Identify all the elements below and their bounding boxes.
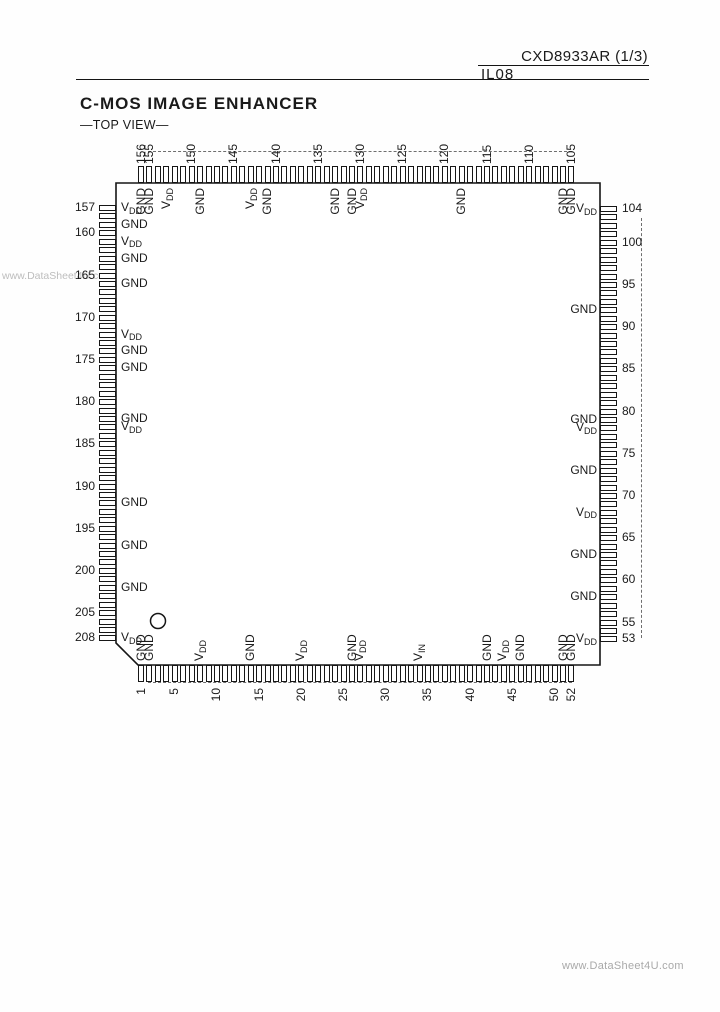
pin-124 — [408, 166, 414, 183]
pin-93 — [600, 299, 617, 305]
pin-162 — [99, 247, 116, 253]
pin-202 — [99, 585, 116, 591]
pin-114 — [492, 166, 498, 183]
pin-label-197: GND — [121, 539, 148, 552]
pin-16 — [265, 665, 271, 682]
pin-177 — [99, 374, 116, 380]
pin-165 — [99, 273, 116, 279]
pin-155 — [146, 166, 152, 183]
pin-180 — [99, 399, 116, 405]
pin-128 — [374, 166, 380, 183]
pin-number-55: 55 — [622, 616, 635, 629]
pin-59 — [600, 586, 617, 592]
pin-144 — [239, 166, 245, 183]
pin-45 — [509, 665, 515, 682]
pin-173 — [99, 340, 116, 346]
pin-100 — [600, 240, 617, 246]
pin-138 — [290, 166, 296, 183]
pin-87 — [600, 349, 617, 355]
pin-121 — [433, 166, 439, 183]
pin-42 — [484, 665, 490, 682]
pin-15 — [256, 665, 262, 682]
pin-label-192: GND — [121, 496, 148, 509]
pin-176 — [99, 365, 116, 371]
pin-153 — [163, 166, 169, 183]
pin-168 — [99, 298, 116, 304]
pin-number-205: 205 — [75, 606, 95, 619]
pin-54 — [600, 628, 617, 634]
pin-label-159: GND — [121, 218, 148, 231]
pin-81 — [600, 400, 617, 406]
pin-82 — [600, 392, 617, 398]
pin-40 — [467, 665, 473, 682]
pin-185 — [99, 441, 116, 447]
pin-188 — [99, 467, 116, 473]
pin-190 — [99, 484, 116, 490]
pin-203 — [99, 593, 116, 599]
pin-30 — [383, 665, 389, 682]
pin-48 — [535, 665, 541, 682]
pin-163 — [99, 256, 116, 262]
pin-number-157: 157 — [75, 201, 95, 214]
pin-51 — [560, 665, 566, 682]
pin-4 — [163, 665, 169, 682]
pin-104 — [600, 206, 617, 212]
pin-113 — [501, 166, 507, 183]
pin-193 — [99, 509, 116, 515]
pin-140 — [273, 166, 279, 183]
pin-88 — [600, 341, 617, 347]
pin-72 — [600, 476, 617, 482]
pin-46 — [518, 665, 524, 682]
pin-34 — [417, 665, 423, 682]
pin-195 — [99, 526, 116, 532]
pin-36 — [433, 665, 439, 682]
pin-161 — [99, 239, 116, 245]
pin-115 — [484, 166, 490, 183]
pin-109 — [535, 166, 541, 183]
pin-102 — [600, 223, 617, 229]
pin-number-60: 60 — [622, 573, 635, 586]
pin-19 — [290, 665, 296, 682]
pin-94 — [600, 290, 617, 296]
pin-131 — [349, 166, 355, 183]
pin-142 — [256, 166, 262, 183]
pin-67 — [600, 518, 617, 524]
pin-label-172: VDD — [121, 328, 142, 342]
pin-number-70: 70 — [622, 489, 635, 502]
pin-125 — [400, 166, 406, 183]
pin-18 — [281, 665, 287, 682]
pin-191 — [99, 492, 116, 498]
pin-label-163: GND — [121, 252, 148, 265]
pin-85 — [600, 366, 617, 372]
pin-95 — [600, 282, 617, 288]
pin-105 — [568, 166, 574, 183]
pin-107 — [552, 166, 558, 183]
pin-38 — [450, 665, 456, 682]
datasheet-page: CXD8933AR (1/3) IL08 C-MOS IMAGE ENHANCE… — [0, 0, 720, 1012]
pin-146 — [222, 166, 228, 183]
pin-78 — [600, 425, 617, 431]
pin-5 — [172, 665, 178, 682]
pin-135 — [315, 166, 321, 183]
pin-174 — [99, 348, 116, 354]
pin-number-200: 200 — [75, 564, 95, 577]
pin-label-166: GND — [121, 277, 148, 290]
pin-167 — [99, 289, 116, 295]
pin-52 — [568, 665, 574, 682]
pin-39 — [459, 665, 465, 682]
pin-label-53: VDD — [576, 632, 597, 646]
pin-41 — [476, 665, 482, 682]
pin-label-68: VDD — [576, 506, 597, 520]
pin-2 — [146, 665, 152, 682]
pin-179 — [99, 391, 116, 397]
pin-11 — [222, 665, 228, 682]
pin-56 — [600, 611, 617, 617]
pin-129 — [366, 166, 372, 183]
pin-106 — [560, 166, 566, 183]
pin-116 — [476, 166, 482, 183]
pin-label-104: VDD — [576, 202, 597, 216]
pin-3 — [155, 665, 161, 682]
pin-197 — [99, 543, 116, 549]
pin-97 — [600, 265, 617, 271]
pin-199 — [99, 559, 116, 565]
pin-89 — [600, 333, 617, 339]
pin-103 — [600, 214, 617, 220]
pin-55 — [600, 620, 617, 626]
pin-63 — [600, 552, 617, 558]
pin-76 — [600, 442, 617, 448]
pin-143 — [248, 166, 254, 183]
pin-10 — [214, 665, 220, 682]
pin-58 — [600, 594, 617, 600]
pin-160 — [99, 230, 116, 236]
pin-83 — [600, 383, 617, 389]
pin-23 — [324, 665, 330, 682]
pin-172 — [99, 332, 116, 338]
pin-number-190: 190 — [75, 480, 95, 493]
pin-74 — [600, 459, 617, 465]
pin-1 — [138, 665, 144, 682]
pin-208 — [99, 635, 116, 641]
pin-152 — [172, 166, 178, 183]
pin-186 — [99, 450, 116, 456]
pin-90 — [600, 324, 617, 330]
pin-61 — [600, 569, 617, 575]
pin-49 — [543, 665, 549, 682]
pin-64 — [600, 544, 617, 550]
pin-label-202: GND — [121, 581, 148, 594]
pin-label-161: VDD — [121, 235, 142, 249]
pin-75 — [600, 451, 617, 457]
pin-53 — [600, 636, 617, 642]
pin-166 — [99, 281, 116, 287]
pin-117 — [467, 166, 473, 183]
pin-label-73: GND — [570, 464, 597, 477]
pin-32 — [400, 665, 406, 682]
pin-number-195: 195 — [75, 522, 95, 535]
pin-number-180: 180 — [75, 395, 95, 408]
pin-label-176: GND — [121, 361, 148, 374]
pin-70 — [600, 493, 617, 499]
pin-37 — [442, 665, 448, 682]
pin-91 — [600, 316, 617, 322]
pin-108 — [543, 166, 549, 183]
pin-13 — [239, 665, 245, 682]
pin-label-63: GND — [570, 548, 597, 561]
pin-number-90: 90 — [622, 320, 635, 333]
pin-204 — [99, 602, 116, 608]
pin-20 — [298, 665, 304, 682]
pin-207 — [99, 627, 116, 633]
pin-number-100: 100 — [622, 236, 642, 249]
pin-118 — [459, 166, 465, 183]
pin-192 — [99, 500, 116, 506]
pin-183 — [99, 424, 116, 430]
pin-number-65: 65 — [622, 531, 635, 544]
pin-73 — [600, 468, 617, 474]
pin-99 — [600, 248, 617, 254]
pin-110 — [526, 166, 532, 183]
pin-33 — [408, 665, 414, 682]
pin-147 — [214, 166, 220, 183]
pin-198 — [99, 551, 116, 557]
pin-201 — [99, 576, 116, 582]
pin-71 — [600, 485, 617, 491]
pin-21 — [307, 665, 313, 682]
pin-92 — [600, 307, 617, 313]
pin-77 — [600, 434, 617, 440]
pin-148 — [206, 166, 212, 183]
pin-127 — [383, 166, 389, 183]
pin-12 — [231, 665, 237, 682]
pin-number-53: 53 — [622, 632, 635, 645]
pin-31 — [391, 665, 397, 682]
pin-label-78: VDD — [576, 421, 597, 435]
pin-132 — [341, 166, 347, 183]
pin-154 — [155, 166, 161, 183]
pin-151 — [180, 166, 186, 183]
pin-label-208: VDD — [121, 631, 142, 645]
pin-label-58: GND — [570, 590, 597, 603]
pin-9 — [206, 665, 212, 682]
pin-86 — [600, 358, 617, 364]
pin-24 — [332, 665, 338, 682]
pin-141 — [265, 166, 271, 183]
pin-22 — [315, 665, 321, 682]
pin-60 — [600, 577, 617, 583]
pin-28 — [366, 665, 372, 682]
pin-number-160: 160 — [75, 226, 95, 239]
pin-number-95: 95 — [622, 278, 635, 291]
pin-8 — [197, 665, 203, 682]
pin-50 — [552, 665, 558, 682]
pin-164 — [99, 264, 116, 270]
pinout-diagram: 1561551501451401351301251201151101051510… — [0, 0, 720, 1012]
pin-175 — [99, 357, 116, 363]
pin-145 — [231, 166, 237, 183]
pin-84 — [600, 375, 617, 381]
pin-169 — [99, 306, 116, 312]
pin-130 — [357, 166, 363, 183]
pin-139 — [281, 166, 287, 183]
pin-184 — [99, 433, 116, 439]
chip-body — [116, 183, 600, 665]
pin-170 — [99, 315, 116, 321]
pin-156 — [138, 166, 144, 183]
pin-66 — [600, 527, 617, 533]
pin-123 — [417, 166, 423, 183]
pin-196 — [99, 534, 116, 540]
pin-119 — [450, 166, 456, 183]
pin-number-185: 185 — [75, 437, 95, 450]
pin-7 — [189, 665, 195, 682]
pin-96 — [600, 274, 617, 280]
pin-68 — [600, 510, 617, 516]
pin-122 — [425, 166, 431, 183]
pin-label-174: GND — [121, 344, 148, 357]
pin-159 — [99, 222, 116, 228]
pin-126 — [391, 166, 397, 183]
pin-label-157: VDD — [121, 201, 142, 215]
pin-27 — [357, 665, 363, 682]
pin-178 — [99, 382, 116, 388]
pin-26 — [349, 665, 355, 682]
pin-189 — [99, 475, 116, 481]
pin-79 — [600, 417, 617, 423]
pin-182 — [99, 416, 116, 422]
pin-number-85: 85 — [622, 362, 635, 375]
pin-number-208: 208 — [75, 631, 95, 644]
pin-111 — [518, 166, 524, 183]
pin-137 — [298, 166, 304, 183]
pin-62 — [600, 560, 617, 566]
pin-157 — [99, 205, 116, 211]
pin-120 — [442, 166, 448, 183]
pin-label-183: VDD — [121, 420, 142, 434]
pin-80 — [600, 409, 617, 415]
pin-101 — [600, 231, 617, 237]
pin-number-104: 104 — [622, 202, 642, 215]
pin-44 — [501, 665, 507, 682]
pin-133 — [332, 166, 338, 183]
pin-number-80: 80 — [622, 405, 635, 418]
pin-171 — [99, 323, 116, 329]
pin-200 — [99, 568, 116, 574]
pin-number-165: 165 — [75, 269, 95, 282]
pin-35 — [425, 665, 431, 682]
pin-65 — [600, 535, 617, 541]
pin-158 — [99, 213, 116, 219]
pin-181 — [99, 408, 116, 414]
pin-29 — [374, 665, 380, 682]
pin-206 — [99, 619, 116, 625]
pin-57 — [600, 603, 617, 609]
pin-205 — [99, 610, 116, 616]
pin-149 — [197, 166, 203, 183]
pin-43 — [492, 665, 498, 682]
pin-number-170: 170 — [75, 311, 95, 324]
pin-number-75: 75 — [622, 447, 635, 460]
pin-134 — [324, 166, 330, 183]
pin-112 — [509, 166, 515, 183]
pin-25 — [341, 665, 347, 682]
pin-47 — [526, 665, 532, 682]
pin-6 — [180, 665, 186, 682]
pin-98 — [600, 257, 617, 263]
pin-69 — [600, 501, 617, 507]
pin-187 — [99, 458, 116, 464]
pin-14 — [248, 665, 254, 682]
pin-number-175: 175 — [75, 353, 95, 366]
pin-label-92: GND — [570, 303, 597, 316]
pin-150 — [189, 166, 195, 183]
pin-136 — [307, 166, 313, 183]
pin-194 — [99, 517, 116, 523]
pin-17 — [273, 665, 279, 682]
